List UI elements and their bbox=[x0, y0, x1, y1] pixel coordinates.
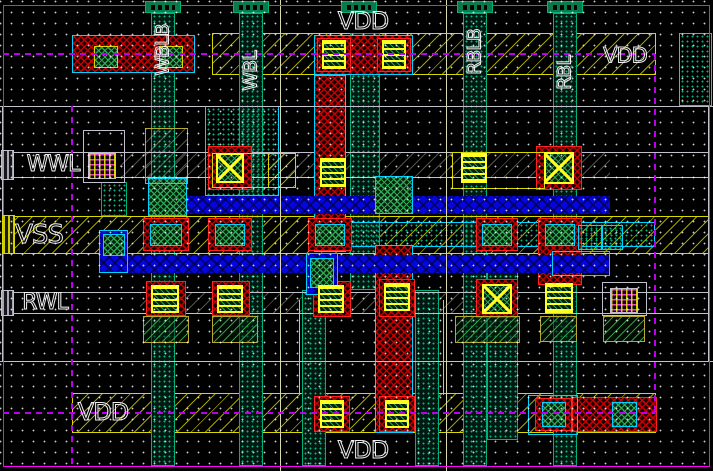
contact-vdd-bottom-2[interactable] bbox=[612, 402, 637, 427]
poly-line-v1 bbox=[299, 300, 300, 395]
via-rwl-1[interactable] bbox=[151, 285, 179, 313]
cell-boundary-line-h1 bbox=[0, 106, 713, 107]
contact-vss-3[interactable] bbox=[315, 224, 345, 246]
via-center-tab[interactable] bbox=[310, 258, 334, 288]
poly-pad-3[interactable] bbox=[455, 316, 520, 343]
poly-pad-5[interactable] bbox=[603, 316, 645, 342]
via-vdd-bottom-2[interactable] bbox=[385, 400, 409, 428]
port-cap-wbl[interactable] bbox=[233, 1, 269, 13]
nwell-right-block[interactable] bbox=[679, 33, 712, 106]
via-rwl-4[interactable] bbox=[384, 283, 410, 311]
via-gate-right[interactable] bbox=[375, 176, 413, 214]
pin-marker-vss[interactable] bbox=[2, 215, 15, 254]
metal2-rwl-strap[interactable] bbox=[100, 255, 610, 273]
layout-canvas[interactable]: VDDWBLBWBLRBLBRBLVDDWWLVSSRWLVDDVDD bbox=[0, 0, 713, 471]
frame-right bbox=[709, 5, 710, 467]
net-label-vdd-bottom[interactable]: VDD bbox=[338, 438, 388, 462]
frame-bottom bbox=[3, 466, 710, 467]
net-label-rbl[interactable]: RBL bbox=[556, 56, 575, 90]
cell-boundary-line-v1 bbox=[280, 0, 281, 471]
metal-col-bottom-right[interactable] bbox=[415, 290, 439, 466]
guide-dash-h-top bbox=[3, 53, 655, 55]
poly-pad-4[interactable] bbox=[540, 316, 577, 342]
poly-via-rwl[interactable] bbox=[610, 288, 638, 313]
via-wwl-1[interactable] bbox=[216, 153, 244, 183]
port-cap-wblb[interactable] bbox=[145, 1, 181, 13]
poly-pad-2[interactable] bbox=[212, 316, 258, 343]
contact-vss-4[interactable] bbox=[482, 224, 512, 246]
contact-vss-1[interactable] bbox=[150, 224, 182, 246]
poly-line-v2 bbox=[443, 300, 444, 395]
net-label-wwl[interactable]: WWL bbox=[27, 154, 80, 176]
net-label-vdd-top[interactable]: VDD bbox=[338, 9, 388, 33]
guide-dash-v-right bbox=[654, 54, 656, 413]
contact-vss-2[interactable] bbox=[215, 224, 245, 246]
via-vdd-bottom-1[interactable] bbox=[320, 400, 344, 428]
pin-marker-wwl[interactable] bbox=[1, 150, 14, 180]
gate-hatch-wwl-left[interactable] bbox=[268, 153, 296, 188]
via-left-tab[interactable] bbox=[103, 234, 125, 256]
net-label-rblb[interactable]: RBLB bbox=[466, 29, 485, 75]
via-rwl-5[interactable] bbox=[482, 284, 512, 314]
net-label-vss[interactable]: VSS bbox=[15, 222, 63, 248]
pin-marker-rwl[interactable] bbox=[1, 290, 14, 316]
vss-cell-a[interactable] bbox=[578, 225, 602, 250]
net-label-vdd-bottom-left[interactable]: VDD bbox=[78, 400, 128, 424]
tan-box-wblb[interactable] bbox=[145, 128, 188, 184]
via-rwl-6[interactable] bbox=[545, 283, 573, 313]
metal2-right-end[interactable] bbox=[552, 251, 610, 276]
net-label-wbl[interactable]: WBL bbox=[242, 51, 261, 90]
cell-boundary-line-v2 bbox=[446, 0, 447, 471]
poly-box-left[interactable] bbox=[101, 182, 127, 216]
via-rwl-2[interactable] bbox=[217, 285, 243, 313]
net-label-vdd-right[interactable]: VDD bbox=[603, 46, 647, 67]
poly-pad-1[interactable] bbox=[143, 316, 189, 343]
contact-vdd-top-left-1[interactable] bbox=[94, 46, 118, 68]
contact-vdd-bottom-1[interactable] bbox=[542, 402, 566, 427]
vss-cell-b[interactable] bbox=[602, 225, 623, 250]
contact-vss-5[interactable] bbox=[545, 224, 575, 246]
via-wwl-2[interactable] bbox=[320, 158, 346, 187]
cell-boundary-line-h2 bbox=[0, 361, 713, 362]
via-wwl-4[interactable] bbox=[544, 152, 574, 184]
net-label-rwl[interactable]: RWL bbox=[22, 292, 67, 314]
port-cap-rblb[interactable] bbox=[457, 1, 493, 13]
vss-rail-line-top bbox=[3, 216, 710, 217]
via-rwl-3[interactable] bbox=[318, 285, 344, 313]
port-cap-rbl[interactable] bbox=[547, 1, 583, 13]
via-wwl-3[interactable] bbox=[461, 153, 487, 183]
poly-via-wwl[interactable] bbox=[88, 153, 116, 179]
net-label-wblb[interactable]: WBLB bbox=[154, 24, 173, 75]
